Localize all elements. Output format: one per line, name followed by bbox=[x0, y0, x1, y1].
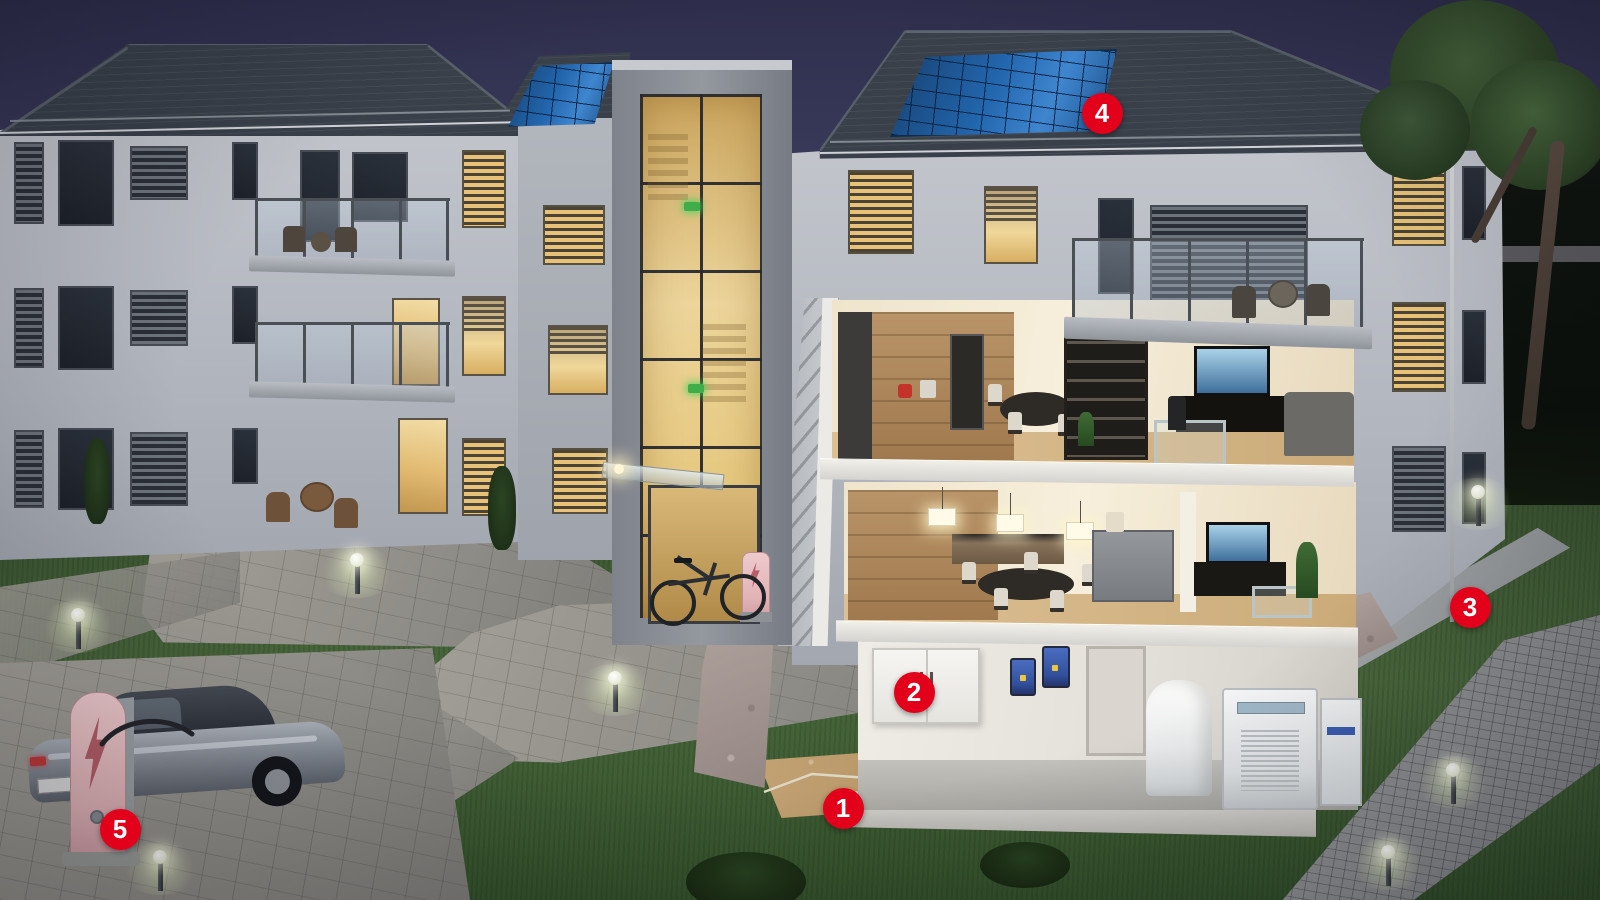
sphere-lamp-icon bbox=[1471, 485, 1485, 499]
window-lit-blind bbox=[462, 296, 506, 376]
sphere-lamp-icon bbox=[71, 608, 85, 622]
window-dark bbox=[232, 428, 258, 484]
window-louver-lit bbox=[848, 170, 914, 254]
solar-inverter bbox=[1042, 646, 1070, 688]
window-louver-dark bbox=[1392, 446, 1446, 532]
wicker-chair bbox=[334, 498, 358, 528]
roof-ridge bbox=[905, 30, 1232, 33]
roof-solar-array-right bbox=[890, 49, 1117, 137]
solar-inverter bbox=[1010, 658, 1036, 696]
window-louver-dark bbox=[14, 288, 44, 368]
bistro-table bbox=[1268, 280, 1298, 308]
window-louver-lit bbox=[552, 448, 608, 514]
wicker-chair bbox=[266, 492, 290, 522]
battery-display bbox=[1327, 727, 1356, 735]
office-chair bbox=[1168, 396, 1186, 430]
red-coffee-machine bbox=[898, 384, 912, 398]
bush bbox=[980, 842, 1070, 888]
marker-2[interactable]: 2 bbox=[894, 672, 935, 713]
window-dark bbox=[58, 286, 114, 370]
window-louver-lit bbox=[543, 205, 605, 265]
pendant-light bbox=[928, 508, 956, 526]
marker-5[interactable]: 5 bbox=[100, 809, 141, 850]
tower-parapet bbox=[612, 60, 792, 70]
bicycle bbox=[648, 540, 788, 630]
exit-sign-icon bbox=[684, 202, 700, 211]
built-in-ovens bbox=[950, 334, 984, 430]
window-louver-dark bbox=[130, 290, 188, 346]
window-lit-blind bbox=[548, 325, 608, 395]
bicycle-saddle bbox=[674, 558, 692, 563]
sphere-lamp-icon bbox=[1446, 763, 1460, 777]
balcony-lower bbox=[255, 322, 450, 406]
hot-water-tank bbox=[1146, 680, 1212, 796]
window-louver-dark bbox=[130, 432, 188, 506]
conifer-shrub bbox=[488, 466, 516, 550]
scene: 12345 bbox=[0, 0, 1600, 900]
tall-fridge-unit bbox=[838, 312, 872, 460]
window-louver-lit bbox=[462, 150, 506, 228]
heat-pump-grille bbox=[1241, 730, 1300, 791]
cutaway-middle-floor bbox=[844, 482, 1356, 628]
sphere-lamp-icon bbox=[1381, 845, 1395, 859]
chest-of-drawers bbox=[1092, 530, 1174, 602]
bollard-post bbox=[76, 619, 81, 649]
balcony-furniture bbox=[283, 220, 357, 254]
window-lit bbox=[398, 418, 448, 514]
terrace-furniture bbox=[262, 462, 372, 532]
heat-pump-display bbox=[1237, 702, 1305, 714]
terrace-table bbox=[300, 482, 334, 512]
outdoor-chair bbox=[1232, 286, 1256, 318]
window-dark bbox=[232, 142, 258, 200]
bollard-post bbox=[355, 564, 360, 594]
stair-flight-hint bbox=[648, 134, 688, 204]
sphere-lamp-icon bbox=[608, 671, 622, 685]
battery-storage-unit bbox=[1320, 698, 1362, 806]
conifer-shrub bbox=[84, 438, 110, 524]
window-louver-dark bbox=[14, 430, 44, 508]
stair-flight-hint bbox=[702, 324, 746, 404]
sphere-lamp-icon bbox=[350, 553, 364, 567]
potted-plant bbox=[1296, 542, 1318, 598]
balcony-upper bbox=[255, 198, 450, 278]
tree bbox=[1350, 0, 1600, 430]
kitchen-island bbox=[952, 534, 1064, 564]
top-floor-balcony bbox=[1072, 238, 1364, 356]
potted-plant bbox=[1078, 412, 1094, 446]
bollard-post bbox=[1476, 496, 1481, 526]
marker-1[interactable]: 1 bbox=[823, 788, 864, 829]
bollard-post bbox=[1386, 856, 1391, 886]
pendant-light bbox=[1066, 522, 1094, 540]
cutaway-basement bbox=[858, 640, 1358, 810]
marker-3[interactable]: 3 bbox=[1450, 587, 1491, 628]
entrance-wall-lamp bbox=[614, 464, 624, 474]
kitchen-appliance bbox=[920, 380, 936, 398]
charger-base bbox=[62, 852, 140, 866]
car-taillight bbox=[30, 756, 47, 766]
exit-sign-icon bbox=[688, 384, 704, 393]
basement-door[interactable] bbox=[1086, 646, 1146, 756]
sphere-lamp-icon bbox=[153, 850, 167, 864]
balcony-glass-railing bbox=[255, 322, 450, 389]
bollard-post bbox=[1451, 774, 1456, 804]
marker-4[interactable]: 4 bbox=[1082, 93, 1123, 134]
balcony-furniture bbox=[1224, 272, 1344, 324]
coffee-machine bbox=[1106, 512, 1124, 532]
heat-pump-unit bbox=[1222, 688, 1318, 810]
pendant-light bbox=[996, 514, 1024, 532]
window-dark bbox=[58, 140, 114, 226]
bollard-post bbox=[158, 861, 163, 891]
corner-sofa bbox=[1284, 392, 1354, 456]
ev-charging-cable bbox=[88, 700, 218, 770]
window-lit-blind bbox=[984, 186, 1038, 264]
bollard-post bbox=[613, 682, 618, 712]
glass-desk bbox=[1154, 420, 1226, 466]
tv-screen bbox=[1206, 522, 1270, 564]
window-louver-dark bbox=[14, 142, 44, 224]
window-louver-dark bbox=[130, 146, 188, 200]
outdoor-chair bbox=[1306, 284, 1330, 316]
